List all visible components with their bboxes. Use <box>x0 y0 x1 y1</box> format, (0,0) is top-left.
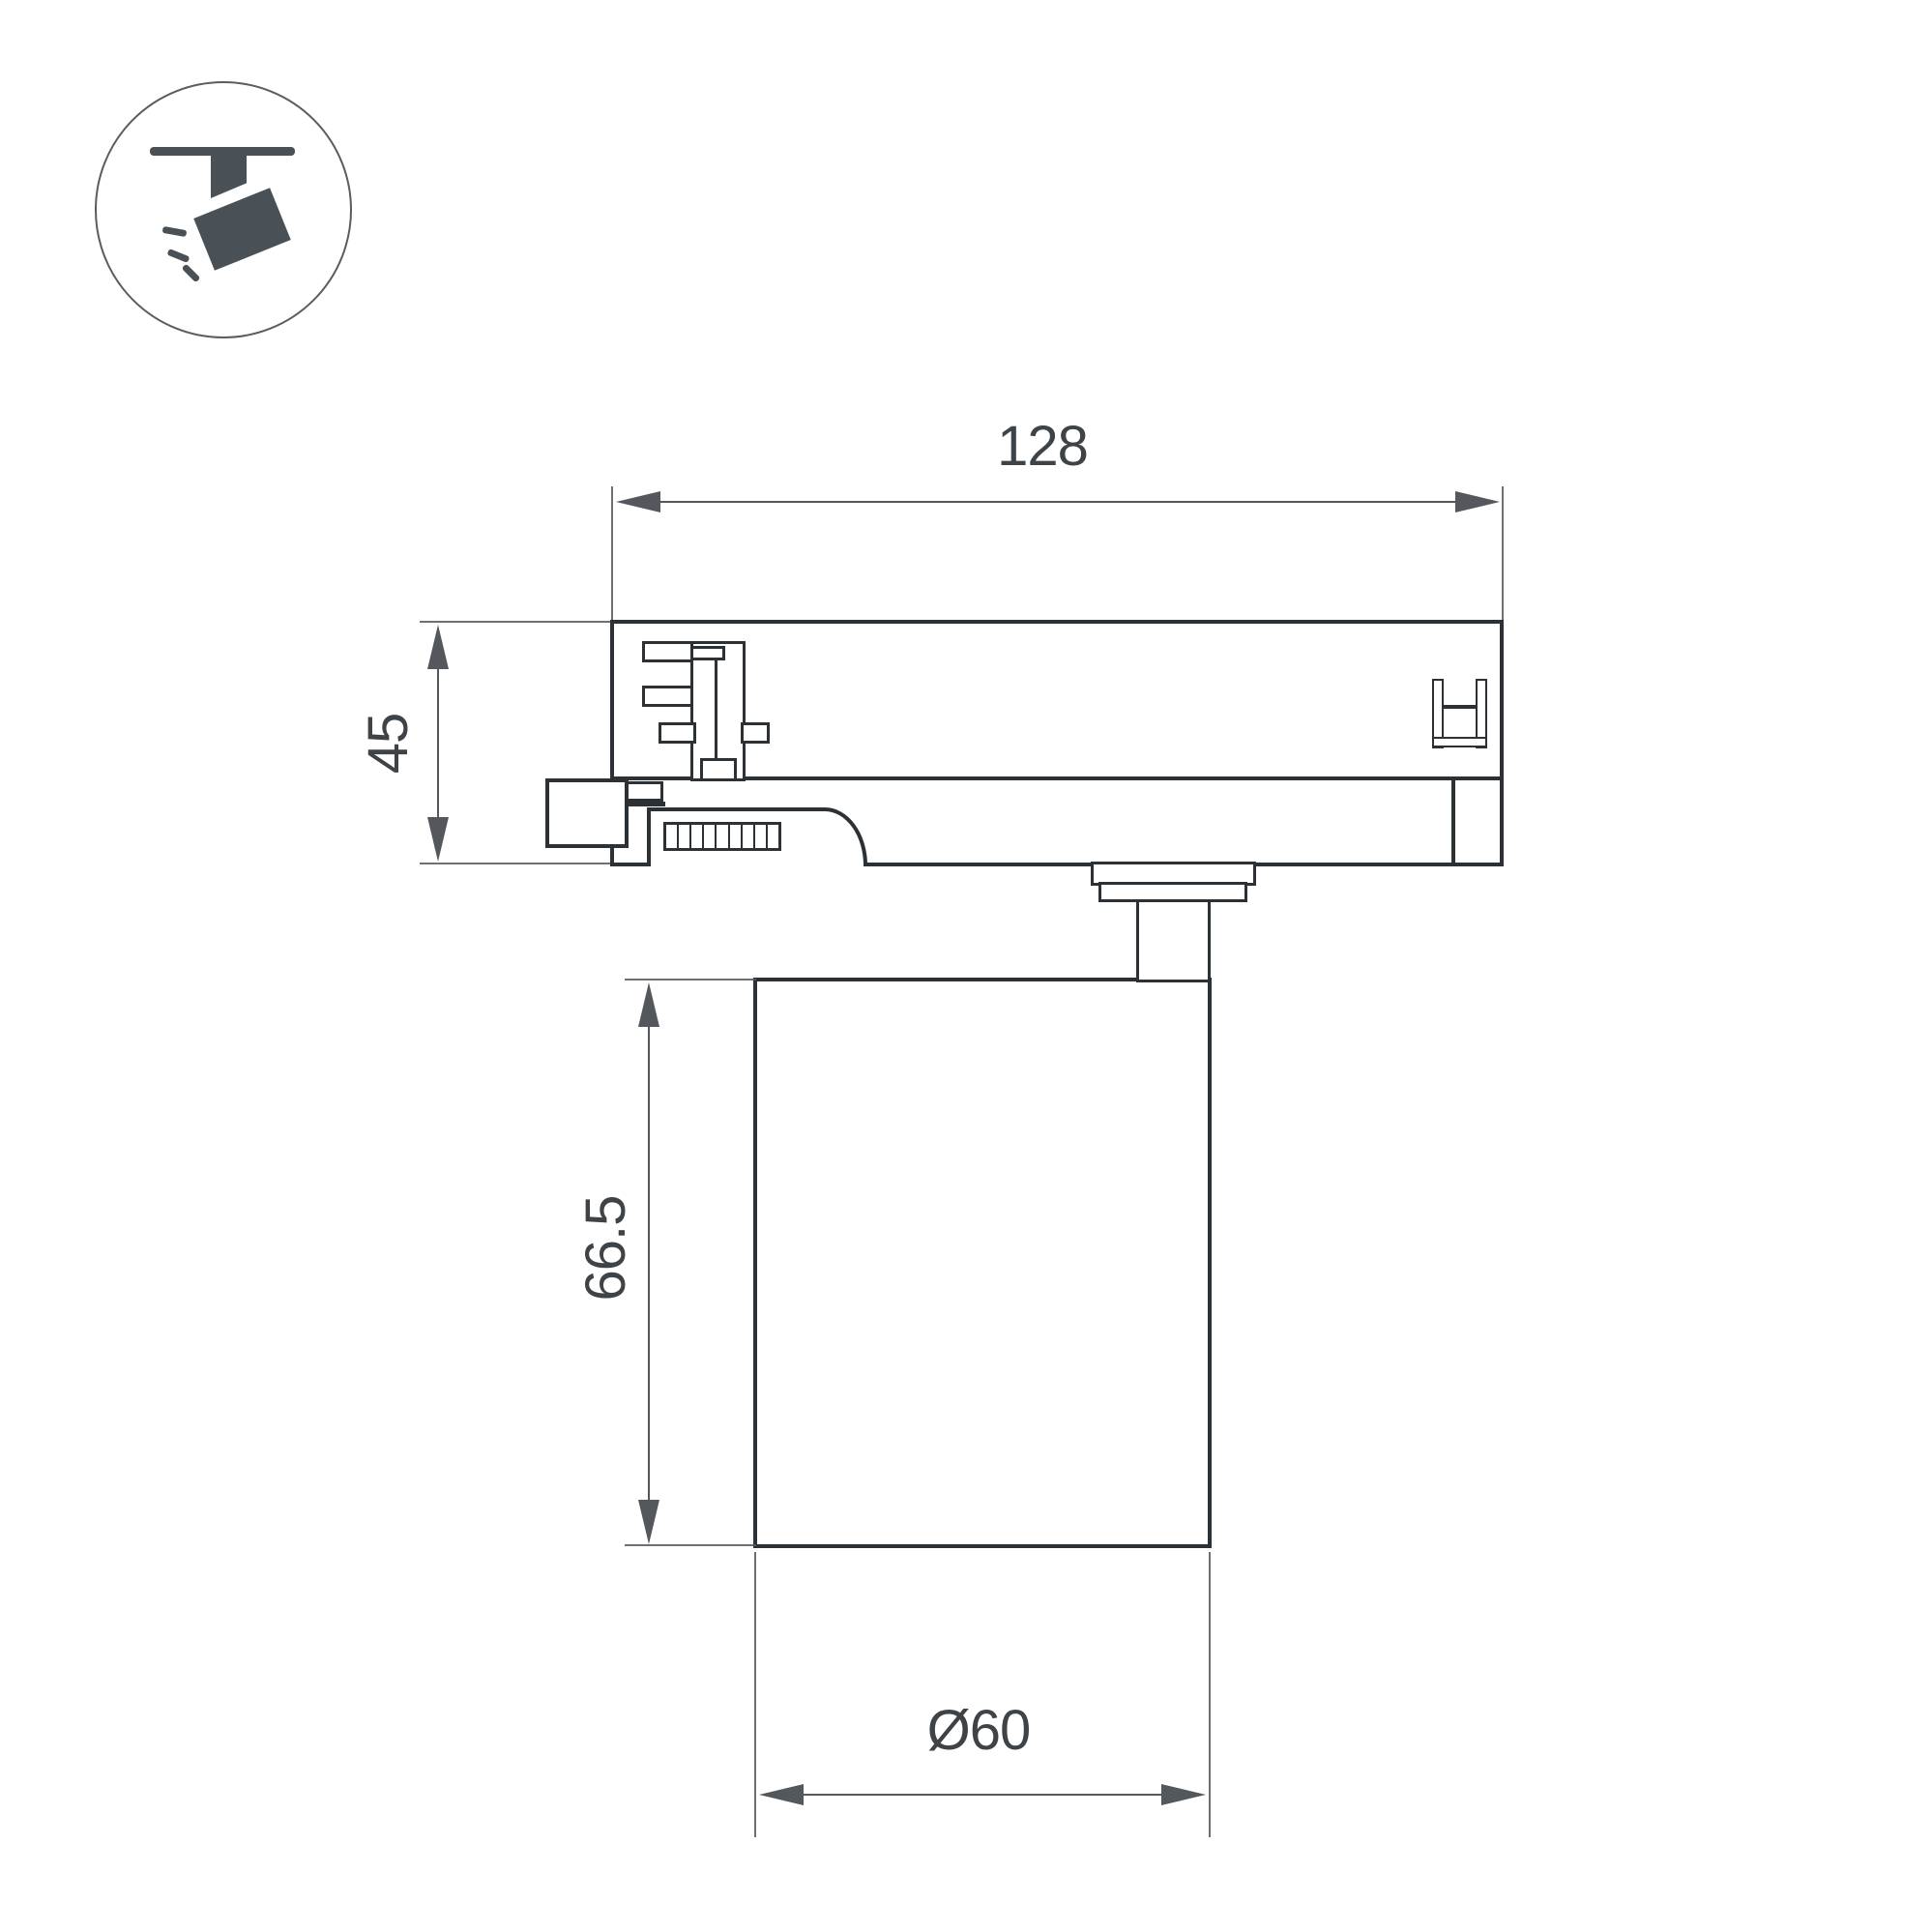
extension-line <box>611 486 613 624</box>
extension-line <box>1502 486 1504 626</box>
icon-light-ray <box>182 264 201 283</box>
dim-label-lamp-height: 66.5 <box>575 1132 637 1364</box>
dim-label-track-width: 128 <box>926 416 1158 478</box>
icon-mount-stem <box>211 154 247 198</box>
grille-cell <box>679 825 691 848</box>
contact-prong <box>741 722 770 744</box>
latch-box <box>545 778 629 848</box>
pivot-flange-lower <box>1098 882 1247 902</box>
track-spotlight-icon <box>97 83 350 337</box>
grille-cell <box>704 825 717 848</box>
dim-line <box>437 638 439 847</box>
dim-line <box>774 1794 1191 1796</box>
lamp-body <box>753 978 1212 1548</box>
latch-step-bar <box>626 802 665 806</box>
dim-line <box>648 996 650 1533</box>
dim-line <box>638 501 1478 503</box>
icon-light-ray <box>167 249 190 263</box>
grille-cell <box>691 825 704 848</box>
dim-label-adapter-height: 45 <box>358 666 420 821</box>
dim-arrow-down <box>427 817 449 862</box>
dim-arrow-right <box>1161 1784 1206 1805</box>
extension-line <box>420 621 615 623</box>
dim-arrow-up <box>427 625 449 669</box>
dim-arrow-up <box>638 982 659 1027</box>
contact-prong <box>642 686 693 707</box>
grille-cell <box>743 825 755 848</box>
dim-arrow-left <box>759 1784 804 1805</box>
dim-arrow-down <box>638 1500 659 1544</box>
extension-line <box>754 1552 756 1837</box>
legend-circle <box>95 81 352 338</box>
adapter-end-divider <box>1451 778 1455 864</box>
grille-cell <box>717 825 729 848</box>
icon-lamp-head <box>193 188 291 271</box>
contact-prong <box>642 641 693 662</box>
contact-prong <box>659 722 696 744</box>
clip-bottom-bar <box>1432 737 1487 747</box>
latch-step <box>626 781 663 802</box>
grille-cell <box>730 825 743 848</box>
clip-crossbar <box>1443 705 1478 709</box>
dim-arrow-left <box>616 491 660 512</box>
ventilation-grille <box>663 822 781 851</box>
grille-cell <box>768 825 778 848</box>
extension-line <box>625 979 756 981</box>
dim-label-lamp-diameter: Ø60 <box>863 1700 1095 1762</box>
grille-cell <box>666 825 679 848</box>
grille-cell <box>755 825 768 848</box>
icon-light-ray <box>162 226 188 237</box>
pivot-stem <box>1136 898 1211 982</box>
contact-foot <box>700 758 737 781</box>
dim-arrow-right <box>1455 491 1500 512</box>
extension-line <box>420 863 615 864</box>
extension-line <box>1209 1552 1211 1837</box>
technical-drawing-canvas: 128 45 <box>0 0 1932 1932</box>
contact-inner-line <box>715 660 717 762</box>
extension-line <box>625 1544 756 1546</box>
